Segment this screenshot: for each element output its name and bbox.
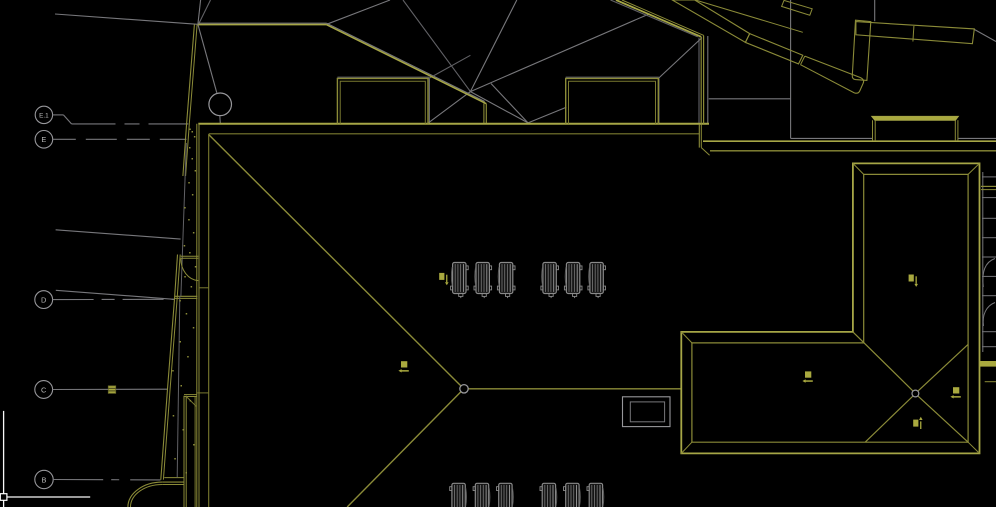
svg-text:B: B	[42, 475, 47, 484]
svg-text:E: E	[41, 135, 46, 144]
svg-text:D: D	[41, 296, 46, 305]
svg-text:C: C	[41, 385, 47, 394]
svg-text:E.1: E.1	[39, 112, 49, 119]
